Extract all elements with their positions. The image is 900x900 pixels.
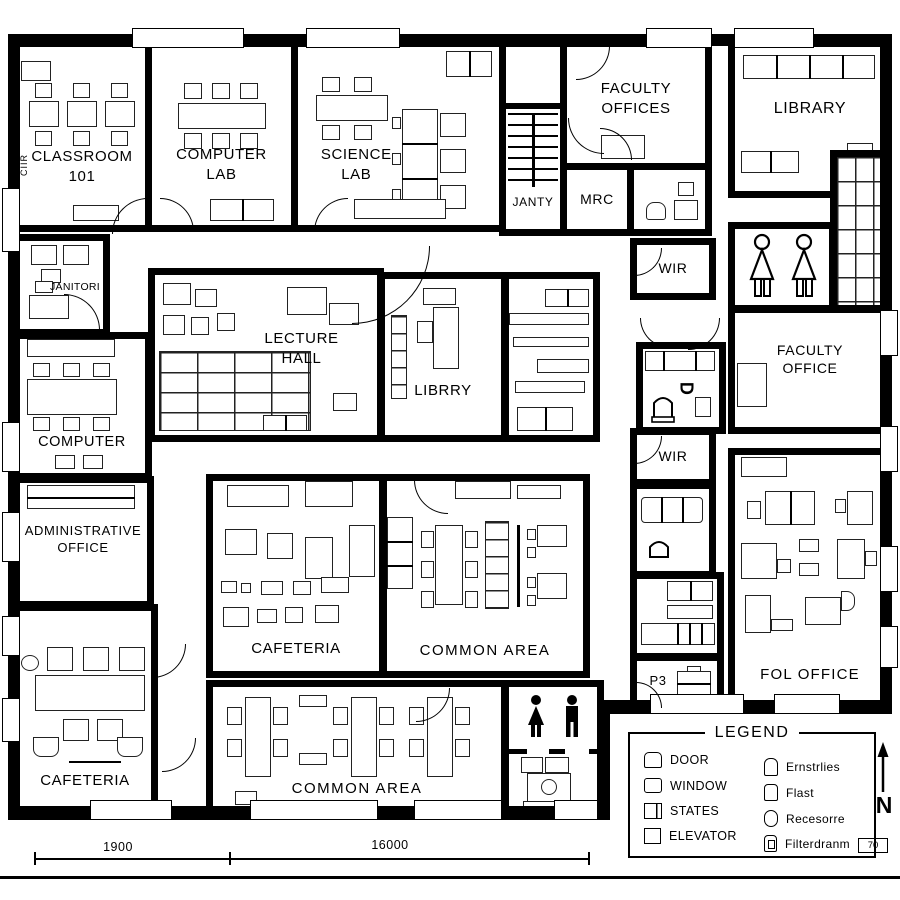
table-divider	[770, 151, 772, 173]
chair	[841, 591, 855, 611]
fixture-icon	[764, 784, 778, 801]
counter	[645, 351, 715, 371]
chair	[212, 83, 230, 99]
legend-item-label: ELEVATOR	[669, 829, 737, 843]
window	[880, 546, 898, 592]
fixture-icon	[764, 758, 778, 776]
room-common-area-center: COMMON AREA	[380, 474, 590, 678]
dimension-line	[35, 858, 590, 860]
chair	[273, 707, 288, 725]
chair	[465, 591, 478, 608]
legend-item-label: STATES	[670, 804, 719, 818]
room-mrc: MRC	[560, 163, 634, 236]
chair	[119, 647, 145, 671]
chair	[285, 607, 303, 623]
room-label: LIBRARY	[735, 99, 885, 120]
counter	[227, 485, 289, 507]
couch	[641, 497, 703, 523]
desk	[741, 543, 777, 579]
room-label: COMMON AREA	[213, 779, 501, 799]
stair-rail	[532, 113, 535, 187]
chair	[421, 591, 434, 608]
fixture	[695, 397, 711, 417]
chair	[63, 417, 80, 431]
podium	[287, 287, 327, 315]
window	[414, 800, 502, 820]
counter-divider	[695, 351, 697, 371]
room-stairwell-janty: JANTY	[499, 40, 567, 236]
woman-figure-icon	[747, 233, 777, 301]
counter	[305, 481, 353, 507]
floor-plan: CLASSROOM101 COMPUTERLAB	[0, 0, 900, 900]
table	[435, 525, 463, 605]
stool	[392, 117, 401, 129]
wall-label-vertical: CIIR	[19, 135, 29, 195]
chair	[273, 739, 288, 757]
window	[774, 694, 840, 714]
room-restroom-bottom	[502, 680, 604, 818]
chair	[83, 455, 103, 469]
dimension-label: 16000	[350, 838, 430, 852]
window	[2, 698, 20, 742]
chair	[184, 83, 202, 99]
legend-item-label: Flast	[786, 786, 814, 800]
desk	[805, 597, 841, 625]
chair	[63, 363, 80, 377]
stool	[117, 737, 143, 757]
window	[554, 800, 598, 820]
fixture-icon	[764, 835, 777, 852]
desk	[29, 295, 69, 319]
divider-panel	[517, 525, 520, 607]
table	[35, 675, 145, 711]
chair	[333, 707, 348, 725]
desk	[745, 595, 771, 633]
table	[225, 529, 257, 555]
armchair	[646, 202, 666, 220]
room-label: JANTY	[506, 195, 560, 211]
cabinet-divider	[387, 565, 413, 567]
counter	[27, 339, 115, 357]
table	[799, 539, 819, 552]
table	[105, 101, 135, 127]
window	[2, 512, 20, 562]
bench	[299, 753, 327, 765]
counter-divider	[27, 497, 135, 499]
shelf-grid	[837, 157, 885, 305]
room-cafeteria-center: CAFETERIA	[206, 474, 386, 678]
north-label: N	[872, 792, 896, 819]
room-label: CAFETERIA	[213, 639, 379, 659]
wall-right	[880, 34, 892, 714]
room-computer: COMPUTER	[12, 332, 152, 480]
wall-mid-vertical	[598, 700, 610, 820]
table-divider	[285, 415, 287, 431]
dimension-tick	[34, 852, 36, 865]
couch-divider	[682, 497, 684, 523]
chair	[83, 647, 109, 671]
room-admin-office: ADMINISTRATIVEOFFICE	[12, 476, 154, 608]
chair	[35, 83, 52, 98]
window	[646, 28, 712, 48]
partition	[509, 749, 527, 754]
chair	[73, 83, 90, 98]
dimension-tick	[588, 852, 590, 865]
drain	[541, 779, 557, 795]
chair	[241, 583, 251, 593]
table	[67, 101, 97, 127]
chair	[227, 739, 242, 757]
counter-divider	[663, 351, 665, 371]
couch-divider	[661, 497, 663, 523]
legend-item-label: WINDOW	[670, 779, 727, 793]
shelf	[517, 485, 561, 499]
window	[880, 426, 898, 472]
stool	[21, 655, 39, 671]
table	[163, 315, 185, 335]
shelf	[537, 359, 589, 373]
man-figure-icon	[561, 695, 583, 741]
chair	[321, 577, 349, 593]
chair	[409, 739, 424, 757]
legend-item-label: Recesorre	[786, 812, 845, 826]
desk	[21, 61, 51, 81]
table	[305, 537, 333, 579]
chair	[465, 531, 478, 548]
window	[2, 188, 20, 252]
room-label: CAFETERIA	[19, 771, 151, 791]
chair	[527, 577, 536, 588]
chair	[421, 531, 434, 548]
shelf-divider	[842, 55, 844, 79]
room-label: COMPUTERLAB	[152, 145, 291, 184]
shelf	[509, 313, 589, 325]
legend-item-label: Filterdranm	[785, 837, 850, 851]
legend: LEGEND DOOR WINDOW STATES ELEVATOR Ernst…	[628, 732, 876, 858]
table	[537, 573, 567, 599]
cabinet-divider	[545, 407, 547, 431]
briefcase-line	[677, 683, 711, 685]
window-icon	[644, 778, 662, 793]
counter-divider	[701, 623, 703, 645]
cabinet-divider	[387, 541, 413, 543]
legend-item-door: DOOR	[644, 752, 709, 768]
table	[163, 283, 191, 305]
chair	[421, 561, 434, 578]
desk	[674, 200, 698, 220]
room-storage-shelves	[502, 272, 600, 442]
legend-item-fixture-4: Filterdranm	[764, 835, 850, 852]
corner-tag: 70	[858, 838, 888, 853]
chair	[747, 501, 761, 519]
window	[880, 310, 898, 356]
briefcase-handle	[687, 666, 701, 672]
desk	[837, 539, 865, 579]
room-fol-office: FOL OFFICE	[728, 448, 892, 712]
counter-divider	[677, 623, 679, 645]
bell-icon	[647, 537, 671, 559]
desk	[741, 457, 787, 477]
chair	[293, 581, 311, 595]
legend-item-fixture-3: Recesorre	[764, 810, 845, 827]
legend-item-states: STATES	[644, 803, 719, 819]
chair	[455, 739, 470, 757]
chair	[111, 83, 128, 98]
woman-figure-icon	[789, 233, 819, 301]
window	[306, 28, 400, 48]
table	[191, 317, 209, 335]
room-label: COMMON AREA	[387, 641, 583, 661]
lab-bench	[316, 95, 388, 121]
dimension-label: 1900	[78, 840, 158, 854]
table	[351, 697, 377, 777]
chair	[223, 607, 249, 627]
legend-item-elevator: ELEVATOR	[644, 828, 737, 844]
chair	[315, 605, 339, 623]
shelf-divider	[469, 51, 471, 77]
chair	[379, 739, 394, 757]
bench	[73, 205, 119, 221]
table	[195, 289, 217, 307]
shelf-divider	[567, 289, 569, 307]
shelf-unit	[485, 521, 509, 609]
legend-item-window: WINDOW	[644, 778, 727, 793]
fixture-icon	[764, 810, 778, 827]
table	[178, 103, 266, 129]
dimension-tick	[229, 852, 231, 865]
chair	[221, 581, 237, 593]
room-science-lab: SCIENCELAB	[291, 40, 506, 232]
chair	[354, 77, 372, 92]
toilet-icon	[649, 389, 677, 423]
states-icon	[644, 803, 662, 819]
chair	[322, 125, 340, 140]
chair	[33, 363, 50, 377]
chair	[257, 609, 277, 623]
chair	[63, 245, 89, 265]
cabinet	[354, 199, 446, 219]
room-label: ADMINISTRATIVEOFFICE	[19, 523, 147, 557]
chair	[835, 499, 846, 513]
table	[799, 563, 819, 576]
desk-divider	[790, 491, 792, 525]
counter-divider	[689, 623, 691, 645]
room-label: SCIENCELAB	[298, 145, 415, 184]
chair	[865, 551, 877, 566]
stool	[33, 737, 59, 757]
room-common-area-bottom: COMMON AREA	[206, 680, 508, 818]
shelf	[515, 381, 585, 393]
shelf	[455, 481, 511, 499]
window	[2, 422, 20, 472]
room-label: CLASSROOM101	[19, 147, 145, 186]
partition	[549, 749, 565, 754]
chair	[33, 417, 50, 431]
chair	[417, 321, 433, 343]
chair	[55, 455, 75, 469]
table	[267, 533, 293, 559]
chair	[31, 245, 57, 265]
window	[880, 626, 898, 668]
shelf	[513, 337, 589, 347]
elevator-icon	[644, 828, 661, 844]
table	[29, 101, 59, 127]
woman-figure-icon	[525, 695, 547, 741]
chair	[322, 77, 340, 92]
desk	[847, 491, 873, 525]
stool	[440, 149, 466, 173]
table	[349, 525, 375, 577]
legend-title: LEGEND	[630, 724, 874, 742]
window	[132, 28, 244, 48]
room-label: COMPUTER	[19, 433, 145, 452]
window	[2, 616, 20, 656]
window	[250, 800, 378, 820]
chair	[678, 182, 694, 196]
room-label: LIBRRY	[385, 381, 501, 401]
room-pantry	[630, 572, 724, 660]
room-utility	[627, 163, 712, 236]
stool	[440, 113, 466, 137]
legend-item-label: Ernstrlies	[786, 760, 840, 774]
chair	[465, 561, 478, 578]
chair	[93, 363, 110, 377]
fixture-dot	[768, 840, 775, 849]
door-arc	[162, 738, 196, 772]
room-label: LECTUREHALL	[226, 329, 377, 368]
chair	[240, 83, 258, 99]
chair	[354, 125, 372, 140]
desk	[433, 307, 459, 369]
room-cafeteria-left: CAFETERIA	[12, 604, 158, 818]
partition	[589, 749, 597, 754]
shelf	[423, 288, 456, 305]
chair	[47, 647, 73, 671]
window	[650, 694, 744, 714]
shelf	[667, 605, 713, 619]
room-lecture-hall: LECTUREHALL	[148, 268, 384, 442]
chair	[527, 595, 536, 606]
room-lounge	[630, 482, 716, 578]
stair-landing-wall	[506, 103, 560, 109]
room-faculty-office: FACULTYOFFICE	[728, 306, 892, 434]
shelf-divider	[776, 55, 778, 79]
desk	[777, 559, 791, 573]
room-label: FOL OFFICE	[735, 665, 885, 685]
floor-mark	[69, 761, 121, 763]
room-toilet-d: D	[636, 342, 726, 434]
desk	[771, 619, 793, 631]
chair	[63, 719, 89, 741]
room-label: MRC	[567, 190, 627, 208]
legend-item-fixture-2: Flast	[764, 784, 814, 801]
legend-item-fixture-1: Ernstrlies	[764, 758, 840, 776]
legend-item-label: DOOR	[670, 753, 709, 767]
shelf-divider	[690, 581, 692, 601]
chair	[35, 131, 52, 146]
chair	[333, 739, 348, 757]
sink-unit	[545, 757, 569, 773]
table	[537, 525, 567, 547]
door-icon	[644, 752, 662, 768]
chair	[227, 707, 242, 725]
chair	[261, 581, 283, 595]
window	[90, 800, 172, 820]
window	[734, 28, 814, 48]
shelf-divider	[809, 55, 811, 79]
chair	[455, 707, 470, 725]
room-restroom-women	[728, 222, 836, 312]
bench	[299, 695, 327, 707]
chair	[73, 131, 90, 146]
chair	[93, 417, 110, 431]
cabinet	[387, 517, 413, 589]
sink-unit	[521, 757, 543, 773]
door-arc	[152, 644, 186, 678]
cabinet-divider	[242, 199, 244, 221]
border-line	[0, 876, 900, 879]
chair	[527, 529, 536, 540]
table	[245, 697, 271, 777]
chair	[379, 707, 394, 725]
table	[333, 393, 357, 411]
table	[27, 379, 117, 415]
chair	[527, 547, 536, 558]
room-label: JANITORI	[49, 281, 101, 295]
room-label: FACULTYOFFICES	[567, 79, 705, 118]
north-arrow	[874, 742, 892, 794]
room-label: FACULTYOFFICE	[735, 341, 885, 377]
chair	[111, 131, 128, 146]
